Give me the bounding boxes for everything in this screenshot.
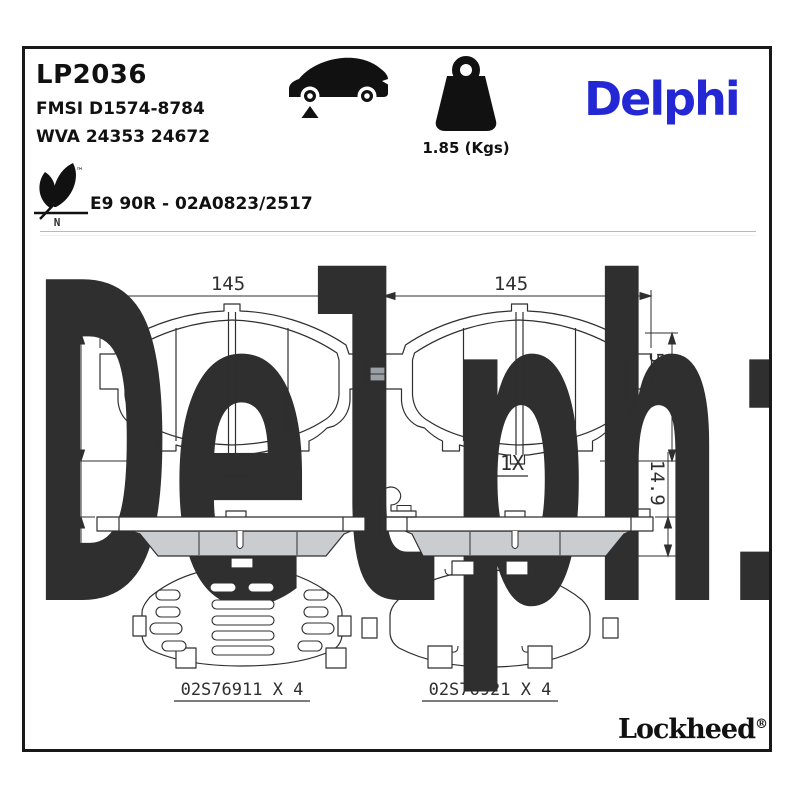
header-separator <box>40 231 756 236</box>
fmsi-reference: FMSI D1574-8784 <box>36 99 205 119</box>
car-icon <box>289 58 388 118</box>
top-tab-right <box>506 561 528 575</box>
dim-height-left: 58.3 <box>59 352 81 398</box>
side-tab-left <box>362 618 377 638</box>
foot-right <box>326 648 346 668</box>
qty-label-right: 1X <box>500 451 524 475</box>
dim-height-right: 58.3 <box>645 352 667 398</box>
wva-reference: WVA 24353 24672 <box>36 127 210 147</box>
dim-width-right: 145 <box>494 273 528 295</box>
delphi-logo: Delphi <box>584 72 739 126</box>
part-number: LP2036 <box>36 60 147 90</box>
shim-part-number-right: 02S76921 X 4 <box>429 680 552 700</box>
trademark-symbol: ™ <box>76 167 82 177</box>
side-tab-right <box>338 616 351 636</box>
top-tab-left <box>452 561 474 575</box>
ece-approval-number: E9 90R - 02A0823/2517 <box>90 194 313 214</box>
dim-thickness-left: 14.9 <box>59 460 81 506</box>
weight-icon <box>436 60 497 131</box>
registered-mark: ® <box>755 717 767 732</box>
top-tab <box>231 558 253 568</box>
dim-thickness-right: 14.9 <box>646 460 668 506</box>
leaf-axis-label: N <box>54 216 61 229</box>
side-tab-right <box>603 618 618 638</box>
backplate-section <box>385 517 653 531</box>
shim-part-number-left: 02S76911 X 4 <box>181 680 304 700</box>
lockheed-wordmark: Lockheed <box>618 714 755 745</box>
groove-notch <box>237 531 243 549</box>
foot-left <box>428 646 452 668</box>
dim-width-left: 145 <box>211 273 245 295</box>
foot-right <box>528 646 552 668</box>
wear-indicator-tab <box>370 367 385 381</box>
backplate-section <box>97 517 365 531</box>
qty-label-left: 3X <box>224 451 248 475</box>
lockheed-logo: Lockheed® <box>555 714 767 745</box>
front-axle-marker <box>302 106 319 118</box>
weight-value: 1.85 (Kgs) <box>406 139 526 157</box>
groove-notch <box>512 531 518 549</box>
side-tab-left <box>133 616 146 636</box>
